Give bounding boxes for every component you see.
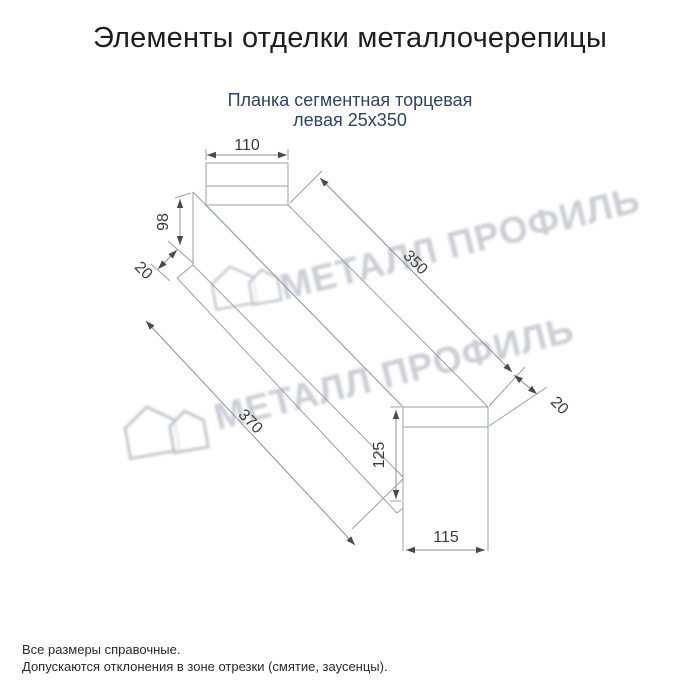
- dim-line-left-fold: [158, 250, 177, 269]
- dim-label-top-width: 110: [234, 137, 260, 154]
- footnotes: Все размеры справочные. Допускаются откл…: [22, 641, 388, 675]
- footnote-cut-zone: Допускаются отклонения в зоне отрезки (с…: [22, 658, 388, 675]
- part-outline: [177, 163, 488, 551]
- dimension-labels: 110 98 20 350 370 20 125 115: [131, 137, 572, 546]
- dim-label-length-bottom: 370: [235, 406, 266, 437]
- dim-label-right-fold: 20: [547, 394, 572, 419]
- dim-label-end-width: 115: [433, 529, 459, 546]
- footnote-reference-sizes: Все размеры справочные.: [22, 641, 388, 658]
- dimension-lines: [146, 155, 537, 550]
- dim-label-left-height: 98: [155, 213, 172, 231]
- dim-label-end-height: 125: [371, 442, 388, 469]
- dim-line-right-fold: [514, 375, 537, 394]
- page: Элементы отделки металлочерепицы Планка …: [0, 0, 700, 700]
- technical-drawing: 110 98 20 350 370 20 125 115: [0, 0, 700, 700]
- dim-label-left-fold: 20: [131, 259, 156, 284]
- dim-label-length-top: 350: [400, 247, 431, 278]
